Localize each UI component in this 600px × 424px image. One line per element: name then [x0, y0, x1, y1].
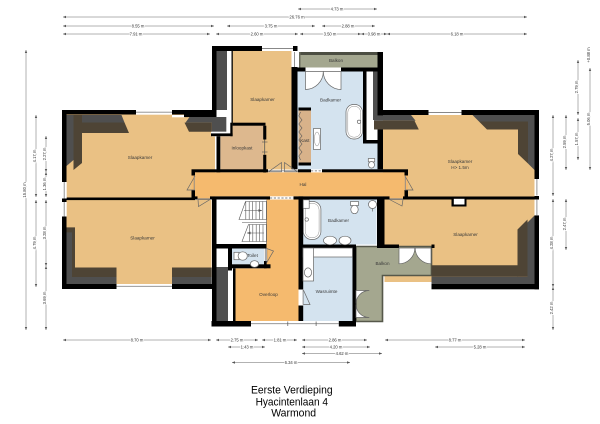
svg-text:Slaapkamer: Slaapkamer [448, 159, 473, 164]
svg-text:Balkon: Balkon [375, 261, 389, 266]
svg-text:Slaapkamer: Slaapkamer [130, 236, 155, 241]
svg-text:2.60 m: 2.60 m [251, 32, 264, 37]
svg-text:6.18 m: 6.18 m [451, 32, 464, 37]
svg-text:15.80 m: 15.80 m [22, 182, 27, 198]
svg-text:5.06 m: 5.06 m [586, 112, 591, 125]
svg-text:2.59 m: 2.59 m [562, 135, 567, 148]
svg-text:Badkamer: Badkamer [328, 218, 349, 223]
svg-text:+0.88 m: +0.88 m [586, 47, 591, 63]
svg-text:4.17 m: 4.17 m [32, 149, 37, 162]
svg-text:4.27 m: 4.27 m [549, 148, 554, 161]
svg-text:5.28 m: 5.28 m [474, 345, 487, 350]
svg-text:Badkamer: Badkamer [320, 98, 341, 103]
svg-text:1.36 m: 1.36 m [42, 177, 47, 190]
svg-text:Inloopkast: Inloopkast [232, 146, 254, 151]
svg-text:3.69 m: 3.69 m [42, 291, 47, 304]
svg-text:2.47 m: 2.47 m [562, 217, 567, 230]
svg-text:2.42 m: 2.42 m [549, 301, 554, 314]
svg-text:Slaapkamer: Slaapkamer [128, 155, 153, 160]
svg-text:Kast: Kast [300, 138, 310, 143]
svg-text:Eerste Verdieping: Eerste Verdieping [251, 385, 333, 397]
svg-text:1.81 m: 1.81 m [274, 338, 287, 343]
svg-text:1.43 m: 1.43 m [241, 345, 254, 350]
svg-text:4.20 m: 4.20 m [330, 345, 343, 350]
svg-text:2.88 m: 2.88 m [342, 24, 355, 29]
svg-text:Overloop: Overloop [259, 292, 278, 297]
svg-text:0.98 m: 0.98 m [368, 32, 381, 37]
svg-text:8.70 m: 8.70 m [131, 338, 144, 343]
svg-text:H> 1.5m: H> 1.5m [451, 165, 469, 170]
svg-text:8.55 m: 8.55 m [132, 24, 145, 29]
svg-text:Hal: Hal [300, 182, 307, 187]
svg-text:2.27 m: 2.27 m [42, 147, 47, 160]
svg-text:3.28 m: 3.28 m [42, 226, 47, 239]
svg-text:4.62 m: 4.62 m [336, 351, 349, 356]
svg-text:Balkon: Balkon [329, 58, 343, 63]
svg-text:6.34 m: 6.34 m [285, 360, 298, 365]
svg-text:Slaapkamer: Slaapkamer [250, 97, 275, 102]
svg-text:Wasruimte: Wasruimte [316, 289, 338, 294]
svg-text:Warmond: Warmond [271, 408, 316, 420]
svg-text:3.75 m: 3.75 m [265, 24, 278, 29]
svg-text:8.77 m: 8.77 m [449, 338, 462, 343]
svg-text:4.79 m: 4.79 m [32, 236, 37, 249]
svg-text:Slaapkamer: Slaapkamer [453, 232, 478, 237]
svg-text:4.28 m: 4.28 m [549, 236, 554, 249]
svg-text:4.73 m: 4.73 m [331, 7, 344, 12]
svg-text:2.79 m: 2.79 m [574, 80, 579, 93]
svg-text:3.50 m: 3.50 m [324, 32, 337, 37]
svg-text:2.86 m: 2.86 m [329, 338, 342, 343]
svg-text:1.57 m: 1.57 m [574, 132, 579, 145]
svg-text:Toilet: Toilet [247, 253, 258, 258]
svg-text:26.76 m: 26.76 m [289, 15, 305, 20]
svg-text:7.91 m: 7.91 m [130, 32, 143, 37]
svg-text:2.75 m: 2.75 m [231, 338, 244, 343]
